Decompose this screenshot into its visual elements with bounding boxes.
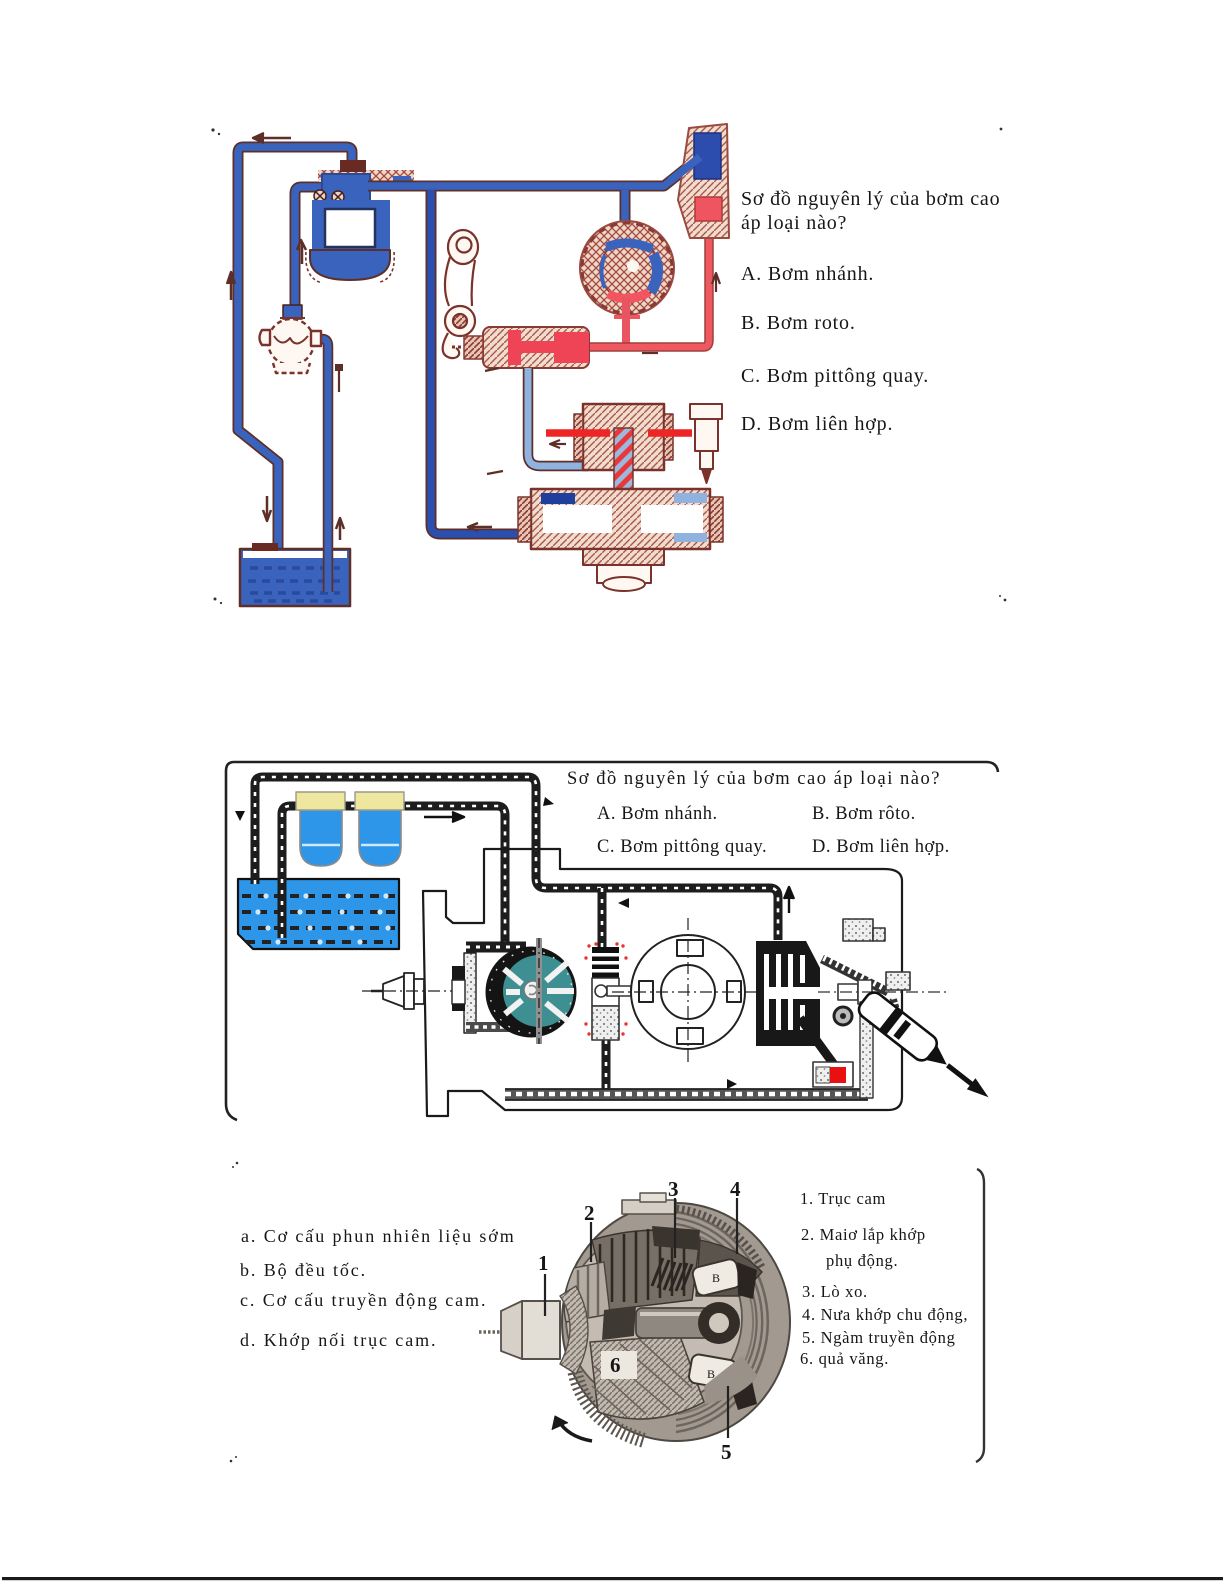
svg-text:4. Nưa khớp chu động,: 4. Nưa khớp chu động, bbox=[802, 1305, 968, 1324]
svg-text:B. Bơm roto.: B. Bơm roto. bbox=[741, 312, 856, 334]
svg-text:áp loại nào?: áp loại nào? bbox=[741, 212, 847, 234]
svg-text:3. Lò xo.: 3. Lò xo. bbox=[802, 1282, 868, 1301]
svg-text:a. Cơ cấu phun nhiên liệu sớm: a. Cơ cấu phun nhiên liệu sớm bbox=[241, 1226, 516, 1246]
svg-text:6. quả văng.: 6. quả văng. bbox=[800, 1349, 889, 1368]
svg-text:c. Cơ cấu truyền động cam.: c. Cơ cấu truyền động cam. bbox=[240, 1290, 487, 1310]
svg-text:phụ động.: phụ động. bbox=[826, 1251, 898, 1270]
svg-text:Sơ đồ nguyên lý của bơm cao: Sơ đồ nguyên lý của bơm cao bbox=[741, 188, 1000, 210]
svg-text:D. Bơm liên hợp.: D. Bơm liên hợp. bbox=[741, 413, 893, 435]
svg-text:2: 2 bbox=[584, 1201, 595, 1225]
svg-text:C. Bơm pittông quay.: C. Bơm pittông quay. bbox=[741, 365, 929, 387]
svg-text:C. Bơm pittông quay.: C. Bơm pittông quay. bbox=[597, 837, 767, 857]
svg-text:1: 1 bbox=[538, 1251, 549, 1275]
svg-text:d. Khớp nối trục cam.: d. Khớp nối trục cam. bbox=[240, 1330, 437, 1350]
svg-text:6: 6 bbox=[610, 1353, 621, 1377]
svg-text:1. Trục cam: 1. Trục cam bbox=[800, 1189, 886, 1208]
svg-text:D. Bơm liên hợp.: D. Bơm liên hợp. bbox=[812, 837, 950, 857]
svg-text:A. Bơm nhánh.: A. Bơm nhánh. bbox=[741, 263, 874, 285]
svg-text:3: 3 bbox=[668, 1177, 679, 1201]
svg-text:5. Ngàm truyền động: 5. Ngàm truyền động bbox=[802, 1328, 956, 1347]
svg-text:B. Bơm rôto.: B. Bơm rôto. bbox=[812, 804, 916, 824]
svg-text:5: 5 bbox=[721, 1440, 732, 1464]
svg-text:2. Maiơ lắp khớp: 2. Maiơ lắp khớp bbox=[801, 1225, 926, 1244]
svg-text:b. Bộ đều tốc.: b. Bộ đều tốc. bbox=[240, 1260, 367, 1280]
svg-text:4: 4 bbox=[730, 1177, 741, 1201]
svg-text:B: B bbox=[712, 1271, 720, 1285]
svg-text:A. Bơm nhánh.: A. Bơm nhánh. bbox=[597, 804, 718, 824]
svg-text:Sơ đồ nguyên lý của bơm cao áp: Sơ đồ nguyên lý của bơm cao áp loại nào? bbox=[567, 769, 941, 789]
svg-text:B: B bbox=[707, 1367, 715, 1381]
